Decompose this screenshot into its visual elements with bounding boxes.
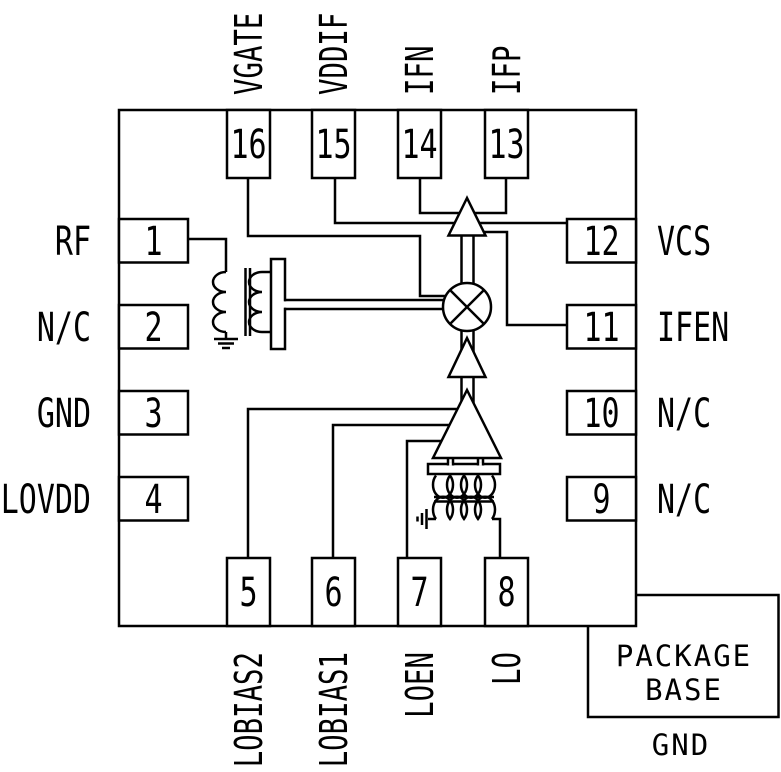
pin-number-2: 2 [144, 305, 162, 351]
pinout-diagram: 16 15 14 13 5 6 7 8 1 2 3 4 12 11 10 9 R… [0, 0, 781, 772]
pin-number-8: 8 [497, 570, 515, 616]
pin-label-nc-10: N/C [657, 391, 711, 437]
mixer-symbol [443, 283, 491, 331]
pin-label-lo: LO [484, 652, 529, 685]
pin-label-gnd: GND [37, 391, 91, 437]
pin-label-rf: RF [55, 219, 91, 265]
wire-ifp [471, 178, 506, 213]
pin-number-16: 16 [230, 122, 266, 168]
package-base: PACKAGE BASE GND [588, 595, 779, 762]
right-pin-labels: VCS IFEN N/C N/C [657, 219, 729, 523]
pin-number-9: 9 [592, 477, 610, 523]
pin-number-12: 12 [583, 219, 619, 265]
lo-balun-secondary-coil [433, 476, 495, 498]
lo-balun-bar [428, 464, 500, 474]
pin-number-3: 3 [144, 391, 162, 437]
if-amplifier-symbol [449, 198, 486, 236]
package-base-line2: BASE [645, 673, 723, 707]
pin-label-vgate: VGATE [226, 13, 271, 95]
pin-number-13: 13 [488, 122, 524, 168]
pin-number-4: 4 [144, 477, 162, 523]
wires [188, 178, 567, 558]
pin-number-15: 15 [315, 122, 351, 168]
pin-label-ifp: IFP [484, 46, 529, 95]
rf-balun-secondary-coil [249, 272, 271, 332]
rf-balun-bar [271, 259, 285, 349]
wire-ifen [480, 232, 567, 325]
pin-label-ifen: IFEN [657, 305, 729, 351]
lo-balun-primary-coil [433, 497, 495, 519]
ground-icon [418, 509, 427, 529]
pin-label-nc-9: N/C [657, 477, 711, 523]
pin-number-10: 10 [583, 391, 619, 437]
package-base-gnd-label: GND [652, 728, 710, 762]
pin-number-6: 6 [324, 570, 342, 616]
lo-balun-notch [479, 463, 482, 466]
rf-balun [213, 259, 450, 349]
pin-number-5: 5 [239, 570, 257, 616]
top-pin-labels: VGATE VDDIF IFN IFP [226, 13, 529, 95]
rf-balun-primary-coil [213, 272, 226, 332]
pin-number-1: 1 [144, 219, 162, 265]
pin-number-14: 14 [401, 122, 437, 168]
pin-boxes [119, 110, 636, 626]
chip-outline [119, 110, 636, 626]
pin-label-loen: LOEN [397, 652, 442, 718]
pin-label-vcs: VCS [657, 219, 711, 265]
left-pin-labels: RF N/C GND LOVDD [1, 219, 91, 523]
bottom-pin-labels: LOBIAS2 LOBIAS1 LOEN LO [226, 652, 529, 767]
pin-number-7: 7 [410, 570, 428, 616]
pin-label-lobias2: LOBIAS2 [226, 652, 271, 767]
schematic-canvas: 16 15 14 13 5 6 7 8 1 2 3 4 12 11 10 9 R… [0, 0, 781, 772]
wire-lo [492, 519, 500, 558]
lo-balun [418, 455, 501, 529]
pin-numbers: 16 15 14 13 5 6 7 8 1 2 3 4 12 11 10 9 [144, 122, 619, 616]
pin-label-ifn: IFN [397, 46, 442, 95]
lo-balun-notch [449, 463, 452, 466]
ground-icon [214, 339, 238, 348]
pin-number-11: 11 [583, 305, 619, 351]
wire-rf [188, 239, 226, 272]
wire-lobias2 [248, 409, 462, 558]
wire-lobias1 [333, 425, 454, 558]
wire-vddif [335, 178, 459, 223]
wire-ifn [420, 178, 463, 213]
pin-label-vddif: VDDIF [311, 13, 356, 95]
pin-label-nc-2: N/C [37, 305, 91, 351]
pin-label-lobias1: LOBIAS1 [311, 652, 356, 767]
pin-label-lovdd: LOVDD [1, 477, 91, 523]
rf-balun-notch [284, 301, 288, 307]
package-base-line1: PACKAGE [616, 639, 752, 673]
lo-buffer-amplifier-symbol [449, 338, 486, 377]
